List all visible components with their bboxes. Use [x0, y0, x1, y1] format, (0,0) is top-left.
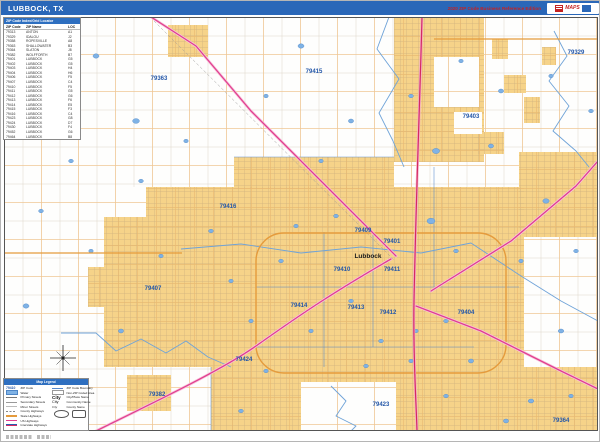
map-legend: Map Legend 79410ZIP CodeWaterPrimary Str…	[3, 378, 89, 431]
marketmaps-logo: MAPS	[547, 3, 599, 14]
col-zip-code: ZIP Code	[6, 25, 26, 29]
fine-print-left	[6, 435, 32, 439]
zip-code-label: 79424	[236, 357, 253, 363]
zip-code-label: 79329	[568, 50, 585, 56]
logo-bars-icon	[582, 5, 591, 12]
zip-code-label: 79363	[151, 76, 168, 82]
zip-code-label: 79410	[334, 267, 351, 273]
zip-code-label: 79404	[458, 310, 475, 316]
edition-label: 2020 ZIP Code Business Reference Edition	[448, 6, 541, 11]
zip-code-label: 79382	[149, 392, 166, 398]
zip-code-label: 79423	[373, 402, 390, 408]
zip-code-label: 79403	[463, 114, 480, 120]
zip-code-map-page: LUBBOCK, TX 2020 ZIP Code Business Refer…	[0, 0, 600, 442]
header-bar: LUBBOCK, TX 2020 ZIP Code Business Refer…	[1, 1, 600, 15]
map-canvas[interactable]: 7936379415794037932979416794097940179410…	[4, 17, 598, 431]
zip-code-label: 79416	[220, 204, 237, 210]
zip-code-label: 79413	[348, 305, 365, 311]
col-zip-name: ZIP Name	[26, 25, 68, 29]
col-loc: LOC	[68, 25, 80, 29]
logo-mark-icon	[555, 5, 563, 12]
zip-code-label: 79409	[355, 228, 372, 234]
us-shield-sample-icon	[72, 410, 87, 418]
map-frame: 7936379415794037932979416794097940179410…	[4, 17, 598, 431]
zip-code-label: 79364	[553, 418, 570, 424]
zip-code-label: 79407	[145, 286, 162, 292]
zip-code-label: 79401	[384, 239, 401, 245]
map-title: LUBBOCK, TX	[1, 4, 64, 13]
legend-item: Interstate Highways	[6, 423, 48, 428]
fine-print-right	[37, 435, 51, 439]
city-name-label: Lubbock	[354, 253, 381, 260]
legend-right-column: ZIP Code BoundaryNon-ZIP Coded AreaCityC…	[50, 385, 88, 429]
zip-code-label: 79411	[384, 267, 401, 273]
zip-code-label: 79412	[380, 310, 397, 316]
legend-item: CityCounty Name	[52, 404, 86, 409]
zip-index-row: 79464LUBBOCKB8	[4, 135, 80, 140]
legend-item: CityCommunity Name	[52, 400, 86, 405]
zip-index-rows: 79313ANTONA179329IDALOUJ279358ROPESVILLE…	[4, 30, 80, 139]
logo-word: MAPS	[565, 5, 579, 11]
zip-code-label: 79415	[306, 69, 323, 75]
highway-shield-samples	[54, 410, 86, 418]
zip-index-table: ZIP Code Index/Grid Locator ZIP Code ZIP…	[3, 17, 81, 140]
legend-left-column: 79410ZIP CodeWaterPrimary StreetsSeconda…	[4, 385, 50, 429]
state-shield-sample-icon	[54, 410, 69, 418]
zip-code-label: 79414	[291, 303, 308, 309]
legend-item: CityCity/Place Name	[52, 395, 86, 400]
